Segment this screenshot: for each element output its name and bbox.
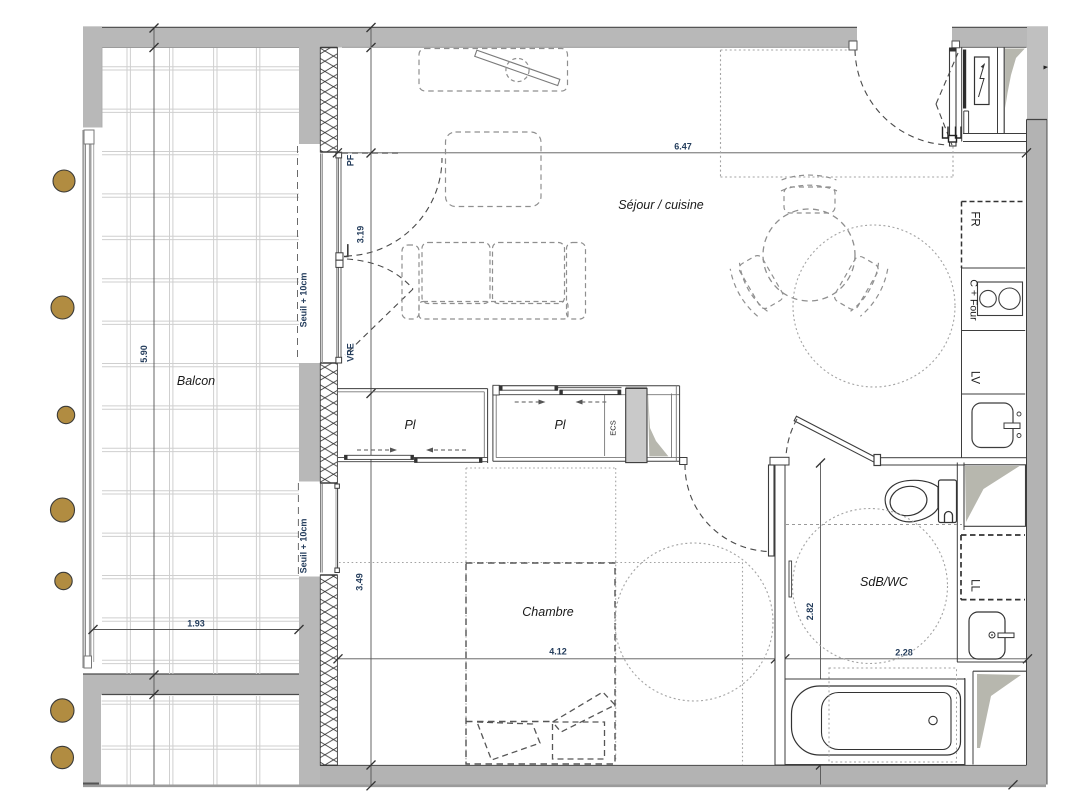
svg-text:5.90: 5.90 bbox=[139, 345, 149, 363]
svg-text:SdB/WC: SdB/WC bbox=[860, 575, 909, 589]
svg-text:Seuil + 10cm: Seuil + 10cm bbox=[299, 519, 309, 574]
svg-text:2.82: 2.82 bbox=[805, 603, 815, 621]
svg-text:FR: FR bbox=[969, 211, 981, 226]
svg-text:Pl: Pl bbox=[404, 418, 416, 432]
svg-text:LV: LV bbox=[969, 371, 981, 385]
svg-text:VRE: VRE bbox=[346, 343, 356, 362]
svg-text:C + Four: C + Four bbox=[967, 279, 979, 321]
svg-text:Pl: Pl bbox=[554, 418, 566, 432]
svg-text:4.12: 4.12 bbox=[549, 647, 567, 657]
svg-text:3.49: 3.49 bbox=[355, 573, 365, 591]
svg-text:LL: LL bbox=[969, 579, 981, 592]
svg-text:ECS: ECS bbox=[609, 420, 618, 435]
svg-text:Chambre: Chambre bbox=[522, 605, 573, 619]
svg-text:PF: PF bbox=[346, 154, 356, 166]
svg-text:Balcon: Balcon bbox=[177, 374, 215, 388]
svg-text:3.19: 3.19 bbox=[356, 226, 366, 244]
svg-text:Séjour / cuisine: Séjour / cuisine bbox=[618, 198, 704, 212]
svg-text:1.93: 1.93 bbox=[187, 619, 205, 629]
svg-text:Seuil + 10cm: Seuil + 10cm bbox=[299, 273, 309, 328]
svg-text:6.47: 6.47 bbox=[674, 142, 692, 152]
